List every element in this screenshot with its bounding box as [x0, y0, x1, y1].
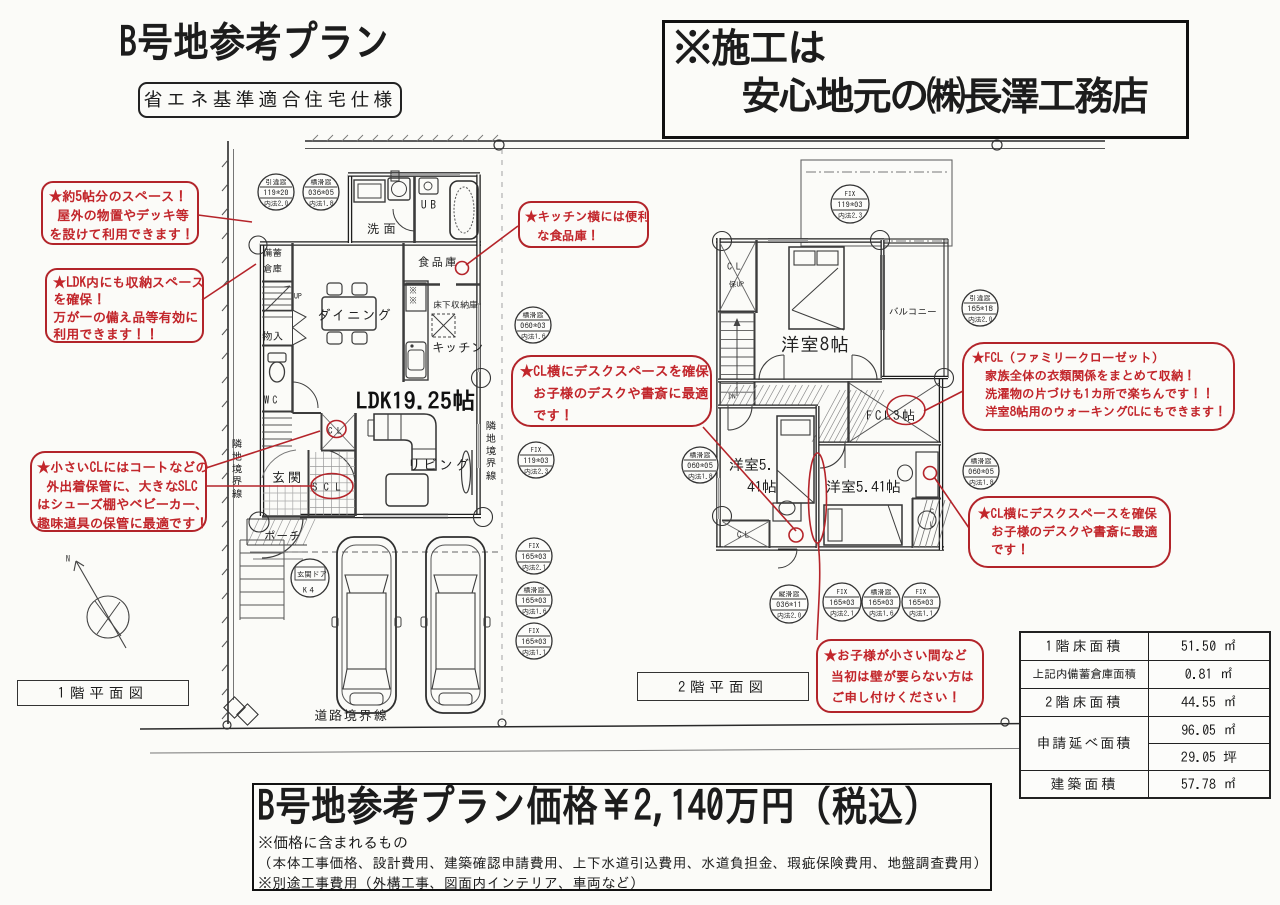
svg-text:165*03: 165*03: [521, 597, 547, 606]
svg-text:FIX: FIX: [531, 447, 542, 454]
svg-text:CL: CL: [737, 531, 752, 540]
svg-text:N: N: [66, 555, 71, 564]
svg-text:165*03: 165*03: [908, 599, 934, 608]
svg-text:FIX: FIX: [529, 543, 540, 550]
svg-text:隣地境界線: 隣地境界線: [485, 420, 496, 483]
svg-text:横滑窓: 横滑窓: [970, 458, 992, 465]
svg-text:060*05: 060*05: [968, 468, 994, 477]
svg-text:UB: UB: [421, 199, 439, 211]
svg-text:玄関ドア: 玄関ドア: [297, 570, 327, 578]
svg-text:165*18: 165*18: [967, 305, 993, 314]
svg-text:リビング: リビング: [407, 458, 471, 472]
svg-text:横滑窓: 横滑窓: [523, 587, 545, 594]
svg-text:食品庫: 食品庫: [418, 257, 459, 268]
svg-text:SCL: SCL: [312, 482, 347, 493]
svg-text:横滑窓: 横滑窓: [689, 452, 711, 459]
svg-text:FIX: FIX: [916, 589, 927, 596]
svg-text:内法2.1: 内法2.1: [522, 564, 547, 571]
svg-text:縦滑窓: 縦滑窓: [779, 591, 800, 598]
svg-text:引違窓: 引違窓: [970, 295, 991, 302]
svg-text:引違窓: 引違窓: [266, 179, 287, 186]
svg-text:玄関: 玄関: [272, 471, 304, 484]
svg-text:内法2.1: 内法2.1: [830, 610, 855, 617]
svg-text:バルコニー: バルコニー: [889, 307, 937, 317]
svg-text:保UP: 保UP: [729, 280, 744, 288]
svg-text:FIX: FIX: [529, 628, 540, 635]
svg-text:内法1.6: 内法1.6: [869, 610, 894, 617]
svg-text:L: L: [930, 520, 934, 528]
svg-text:内法1.8: 内法1.8: [688, 473, 713, 480]
svg-text:K4: K4: [303, 586, 316, 595]
svg-text:内法2.3: 内法2.3: [838, 212, 863, 219]
svg-text:横滑窓: 横滑窓: [870, 589, 892, 596]
svg-text:内法1.6: 内法1.6: [521, 333, 546, 340]
svg-text:内法1.1: 内法1.1: [909, 610, 934, 617]
svg-text:C: C: [930, 507, 934, 515]
svg-text:060*03: 060*03: [520, 322, 546, 331]
svg-text:119*03: 119*03: [523, 457, 549, 466]
svg-text:060*05: 060*05: [687, 462, 713, 471]
svg-text:横滑窓: 横滑窓: [522, 312, 544, 319]
svg-text:FIX: FIX: [837, 589, 848, 596]
svg-text:内法1.8: 内法1.8: [309, 200, 334, 207]
svg-text:物入: 物入: [262, 331, 283, 342]
svg-text:CL: CL: [727, 262, 745, 272]
svg-text:※: ※: [409, 296, 417, 304]
svg-text:洋室5.41帖: 洋室5.41帖: [826, 479, 901, 494]
svg-text:内法1.8: 内法1.8: [969, 479, 994, 486]
svg-text:キッチン: キッチン: [432, 341, 484, 354]
svg-text:内法2.3: 内法2.3: [524, 468, 549, 475]
svg-text:WC: WC: [264, 396, 281, 406]
svg-text:内法1.1: 内法1.1: [522, 649, 547, 656]
svg-text:UP: UP: [294, 292, 302, 300]
svg-text:内法2.0: 内法2.0: [968, 316, 993, 323]
svg-text:隣地境界線: 隣地境界線: [231, 438, 242, 501]
svg-text:119*03: 119*03: [837, 201, 863, 210]
svg-text:036*11: 036*11: [776, 601, 802, 610]
svg-text:LDK19.25帖: LDK19.25帖: [356, 389, 476, 412]
svg-text:165*03: 165*03: [829, 599, 855, 608]
svg-text:165*03: 165*03: [868, 599, 894, 608]
svg-text:内法2.0: 内法2.0: [777, 612, 802, 619]
svg-text:※: ※: [409, 286, 417, 294]
svg-text:内法2.0: 内法2.0: [264, 200, 289, 207]
svg-text:横滑窓: 横滑窓: [310, 179, 332, 186]
svg-text:036*05: 036*05: [308, 189, 334, 198]
svg-text:洋室8帖: 洋室8帖: [781, 335, 850, 354]
svg-text:倉庫: 倉庫: [263, 264, 282, 274]
svg-text:内法1.6: 内法1.6: [522, 608, 547, 615]
svg-text:床下収納庫: 床下収納庫: [433, 300, 478, 310]
svg-text:道路境界線: 道路境界線: [314, 708, 389, 722]
svg-text:FIX: FIX: [845, 191, 856, 198]
svg-text:洗面: 洗面: [367, 222, 400, 235]
svg-text:119*20: 119*20: [263, 189, 289, 198]
svg-text:165*03: 165*03: [521, 553, 547, 562]
svg-text:ダイニング: ダイニング: [317, 308, 392, 322]
svg-text:165*03: 165*03: [521, 638, 547, 647]
